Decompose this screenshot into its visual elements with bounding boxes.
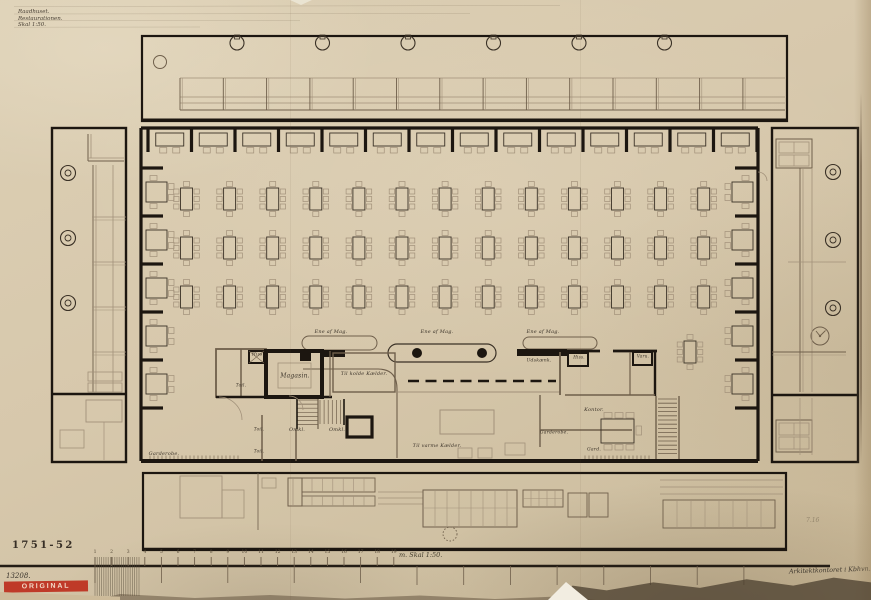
room-label-gard-right: Gard. xyxy=(587,448,601,453)
room-label-ene-af-mag-2: Ene af Mag. xyxy=(421,329,454,335)
scale-number: 5 xyxy=(160,550,163,555)
original-stamp: ORIGINAL xyxy=(4,580,88,592)
scale-number: 12 xyxy=(275,550,281,555)
room-label-toil-c: Toil. xyxy=(254,450,264,455)
scale-caption: m. Skal 1:50. xyxy=(399,551,442,559)
room-label-ene-af-mag-1: Ene af Mag. xyxy=(315,329,348,335)
drawing-sheet: Hiss.Magasin.Til kolde Kælder.Toil.Toil.… xyxy=(0,0,871,600)
room-label-ene-af-mag-3: Ene af Mag. xyxy=(527,329,560,335)
title-line-1: Raadhuset. xyxy=(18,9,49,15)
room-label-varu-right: Varu. xyxy=(637,354,649,359)
pencil-note: 7.16 xyxy=(806,517,819,524)
room-label-garderobe-left: Garderobe. xyxy=(149,451,180,457)
scale-number: 16 xyxy=(341,550,347,555)
room-label-til-varme-kaelder: Til varme Kælder. xyxy=(413,443,462,449)
room-label-toil-a: Toil. xyxy=(236,384,246,389)
scale-number: 11 xyxy=(258,550,264,555)
scale-number: 17 xyxy=(358,550,364,555)
scale-number: 7 xyxy=(193,550,196,555)
room-label-magasin: Magasin. xyxy=(280,373,310,380)
scale-number: 13 xyxy=(291,550,297,555)
scale-number: 18 xyxy=(374,550,380,555)
room-label-til-kolde-kaelder: Til kolde Kælder. xyxy=(341,371,388,377)
scale-number: 3 xyxy=(127,550,130,555)
scale-number: 19 xyxy=(391,550,397,555)
drawing-number: 1751-52 xyxy=(12,540,75,551)
room-label-hiss-left: Hiss. xyxy=(252,353,264,358)
room-labels-layer: Hiss.Magasin.Til kolde Kælder.Toil.Toil.… xyxy=(0,0,871,600)
title-line-2: Restaurationen. xyxy=(18,16,63,22)
fold-line xyxy=(580,0,581,600)
scale-number: 15 xyxy=(325,550,331,555)
room-label-udskaenk: Udskænk. xyxy=(526,359,551,364)
inventory-number: 13208. xyxy=(6,572,31,580)
scale-number: 1 xyxy=(94,550,97,555)
scale-number: 14 xyxy=(308,550,314,555)
torn-edge-right xyxy=(854,0,871,600)
scale-number: 8 xyxy=(210,550,213,555)
scale-number: 10 xyxy=(242,550,248,555)
room-label-omkl-a: Omkl. xyxy=(289,427,305,433)
title-line-3: Skal 1:50. xyxy=(18,22,46,28)
room-label-hiss-right: Hiss. xyxy=(573,355,585,360)
scale-number: 9 xyxy=(226,550,229,555)
scale-number: 4 xyxy=(143,550,146,555)
room-label-toil-b: Toil. xyxy=(254,428,264,433)
room-label-kontor: Kontor. xyxy=(584,407,604,413)
scale-number: 6 xyxy=(177,550,180,555)
scale-number: 2 xyxy=(110,550,113,555)
paper-crack xyxy=(860,92,862,462)
fold-line xyxy=(290,0,291,600)
room-label-garderobe-right: Garderobe. xyxy=(540,431,568,436)
room-label-omkl-b: Omkl. xyxy=(329,427,345,433)
